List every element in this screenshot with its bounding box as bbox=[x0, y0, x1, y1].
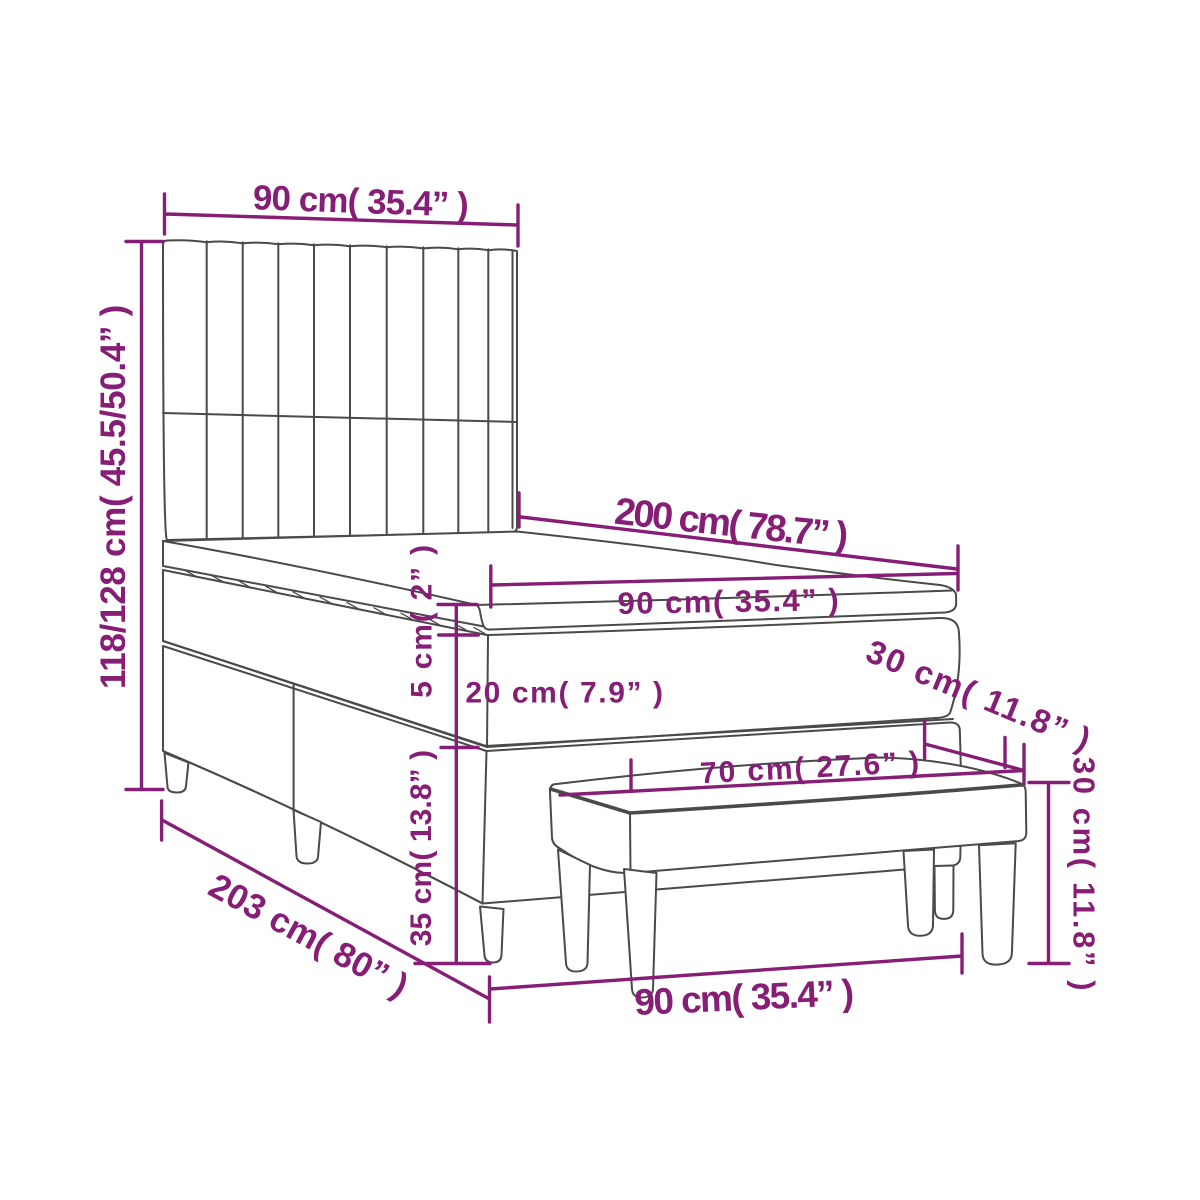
svg-text:90 cm( 35.4” ): 90 cm( 35.4” ) bbox=[252, 178, 468, 224]
svg-text:90 cm( 35.4” ): 90 cm( 35.4” ) bbox=[617, 582, 840, 621]
svg-text:5 cm( 2” ): 5 cm( 2” ) bbox=[406, 543, 439, 698]
svg-text:20 cm( 7.9” ): 20 cm( 7.9” ) bbox=[465, 677, 664, 710]
svg-text:35 cm( 13.8” ): 35 cm( 13.8” ) bbox=[405, 750, 438, 947]
svg-text:30 cm( 11.8” ): 30 cm( 11.8” ) bbox=[1067, 757, 1102, 993]
svg-text:118/128 cm( 45.5/50.4” ): 118/128 cm( 45.5/50.4” ) bbox=[94, 305, 133, 689]
